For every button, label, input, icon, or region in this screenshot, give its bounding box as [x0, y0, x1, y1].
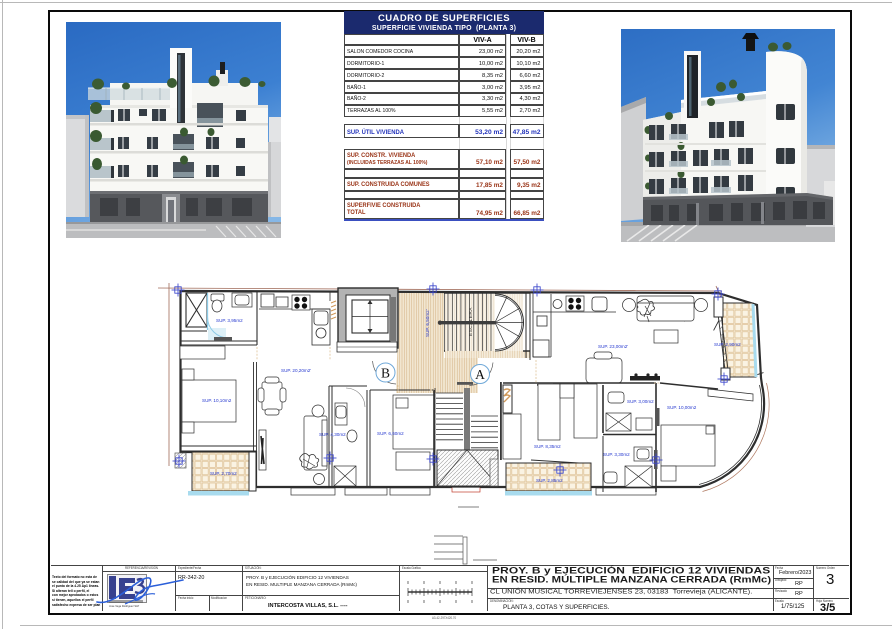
- svg-text:SUP. 3,95m2: SUP. 3,95m2: [216, 318, 243, 323]
- svg-text:SUP. 23,00m2': SUP. 23,00m2': [598, 344, 628, 349]
- svg-text:SUP. 6,60m2: SUP. 6,60m2: [377, 431, 404, 436]
- svg-text:SUP. 10,10m2: SUP. 10,10m2: [202, 398, 232, 403]
- svg-text:SUP. 2,90m2: SUP. 2,90m2: [714, 342, 741, 347]
- svg-text:SUP. 3,00m2: SUP. 3,00m2: [627, 399, 654, 404]
- svg-text:SUP. 10,00m2: SUP. 10,00m2: [667, 405, 697, 410]
- svg-text:SUP. 2,85m2: SUP. 2,85m2: [536, 478, 563, 483]
- svg-text:SUP. 8,35m2: SUP. 8,35m2: [534, 444, 561, 449]
- svg-text:ESCALERA: ESCALERA: [468, 307, 474, 336]
- svg-text:SUP. 2,70m2: SUP. 2,70m2: [210, 471, 237, 476]
- svg-text:SUP. 4,30m2: SUP. 4,30m2: [319, 432, 346, 437]
- svg-text:SUP. 3,30m2: SUP. 3,30m2: [603, 452, 630, 457]
- svg-text:SUP. 6,50m2': SUP. 6,50m2': [425, 309, 430, 337]
- svg-text:B: B: [381, 365, 390, 380]
- svg-text:SUP. 20,20m2': SUP. 20,20m2': [281, 368, 311, 373]
- svg-text:A: A: [475, 367, 485, 382]
